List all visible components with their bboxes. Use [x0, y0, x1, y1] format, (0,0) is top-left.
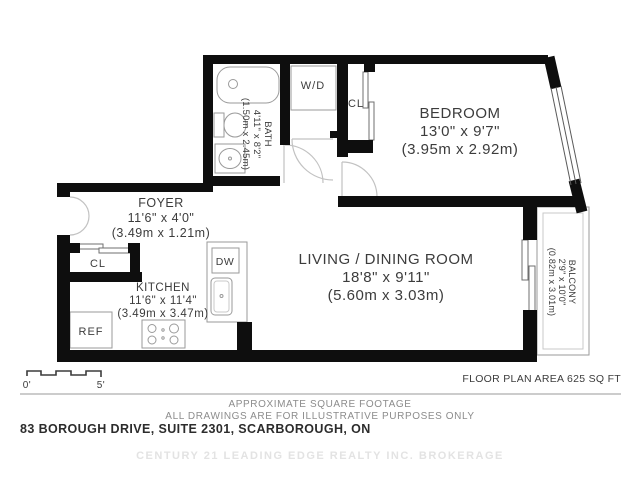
bedroom-dim-m: (3.95m x 2.92m) — [402, 141, 519, 158]
bedroom-window — [551, 86, 581, 185]
area-note: FLOOR PLAN AREA 625 SQ FT — [462, 373, 621, 385]
foyer-closet-label: CL — [90, 258, 106, 270]
washer-door — [292, 139, 333, 180]
kitchen-dim-ft: 11'6" x 11'4" — [129, 295, 197, 307]
foyer-dim-m: (3.49m x 1.21m) — [112, 226, 211, 240]
entry-door-arcs — [70, 197, 89, 235]
floor-plan: BEDROOM 13'0" x 9'7" (3.95m x 2.92m) LIV… — [0, 0, 640, 480]
balcony-sliding-door — [522, 240, 535, 312]
bedroom-closet-sliding-door — [363, 72, 374, 140]
stove — [142, 320, 185, 348]
scale-bar: 0' 5' — [23, 371, 105, 391]
foyer-dim-ft: 11'6" x 4'0" — [128, 211, 195, 225]
living-dim-m: (5.60m x 3.03m) — [328, 287, 445, 304]
property-address: 83 BOROUGH DRIVE, SUITE 2301, SCARBOROUG… — [20, 422, 371, 436]
bedroom-door — [342, 162, 377, 197]
washer-dryer-label: W/D — [301, 80, 325, 92]
scale-end: 5' — [97, 380, 105, 391]
balcony-dim-ft: 2'9" x 10'0" — [557, 259, 567, 306]
kitchen-sink — [211, 278, 232, 315]
living-name: LIVING / DINING ROOM — [298, 251, 473, 268]
living-dim-ft: 18'8" x 9'11" — [342, 269, 430, 286]
foyer-name: FOYER — [138, 196, 184, 210]
bath-name: BATH — [262, 121, 273, 146]
bedroom-name: BEDROOM — [419, 105, 500, 122]
bath-label: BATH 4'11" x 8'2" (1.50m x 2.45m) — [240, 98, 273, 170]
balcony-dim-m: (0.82m x 3.01m) — [547, 248, 557, 317]
bath-dim-ft: 4'11" x 8'2" — [251, 110, 262, 159]
balcony-name: BALCONY — [567, 260, 577, 304]
refrigerator-label: REF — [79, 326, 104, 338]
kitchen-label: KITCHEN 11'6" x 11'4" (3.49m x 3.47m) — [117, 282, 208, 320]
disclaimer-line-1: APPROXIMATE SQUARE FOOTAGE — [228, 399, 411, 410]
dishwasher-label: DW — [216, 256, 235, 268]
kitchen-name: KITCHEN — [136, 282, 190, 294]
kitchen-dim-m: (3.49m x 3.47m) — [117, 308, 208, 320]
bath-dim-m: (1.50m x 2.45m) — [240, 98, 251, 170]
living-dining-label: LIVING / DINING ROOM 18'8" x 9'11" (5.60… — [298, 251, 473, 304]
floor-plan-page: BEDROOM 13'0" x 9'7" (3.95m x 2.92m) LIV… — [0, 0, 640, 480]
scale-start: 0' — [23, 380, 31, 391]
bedroom-closet-label: CL — [348, 98, 364, 110]
disclaimer-line-2: ALL DRAWINGS ARE FOR ILLUSTRATIVE PURPOS… — [165, 411, 474, 422]
foyer-label: FOYER 11'6" x 4'0" (3.49m x 1.21m) — [112, 196, 211, 240]
bedroom-dim-ft: 13'0" x 9'7" — [420, 123, 500, 140]
bedroom-label: BEDROOM 13'0" x 9'7" (3.95m x 2.92m) — [402, 105, 519, 158]
brokerage-watermark: CENTURY 21 LEADING EDGE REALTY INC. BROK… — [136, 450, 504, 462]
